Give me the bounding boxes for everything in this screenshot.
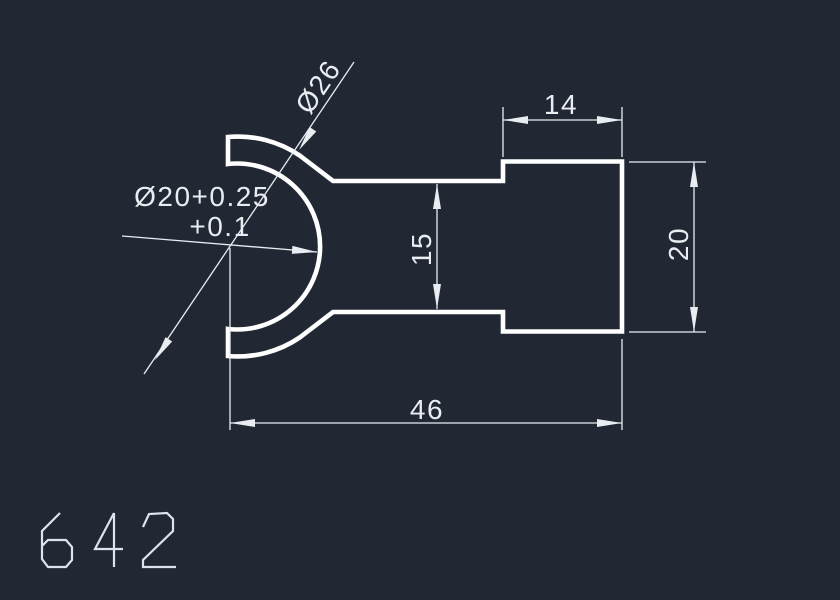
dim-head-height-label: 20 xyxy=(663,227,694,261)
technical-drawing: 14 20 15 46 xyxy=(0,0,840,600)
dim-head-width-label: 14 xyxy=(544,89,578,120)
dim-neck-height-label: 15 xyxy=(406,232,437,266)
dim-inner-diameter: Ø20+0.25 +0.1 xyxy=(122,181,317,254)
arrow-down-left-icon xyxy=(155,337,172,360)
dim-head-width: 14 xyxy=(503,89,622,157)
arrow-right-icon xyxy=(597,419,622,427)
arrow-down-icon xyxy=(690,307,698,332)
arrow-up-icon xyxy=(690,162,698,187)
dim-inner-diameter-label: Ø20+0.25 xyxy=(134,181,270,212)
arrow-right-icon xyxy=(292,246,317,254)
arrow-down-icon xyxy=(433,284,441,309)
dim-inner-diameter-tolerance-label: +0.1 xyxy=(189,211,250,242)
dim-total-length-label: 46 xyxy=(410,394,444,425)
dim-neck-height: 15 xyxy=(406,184,441,309)
arrow-left-icon xyxy=(230,419,255,427)
arrow-up-icon xyxy=(433,184,441,209)
arrow-right-icon xyxy=(597,116,622,124)
cad-canvas: 14 20 15 46 xyxy=(0,0,840,600)
dim-total-length: 46 xyxy=(230,248,622,430)
part-number-label: 642 xyxy=(36,503,177,586)
dim-head-height: 20 xyxy=(629,162,706,332)
dim-outer-diameter-label: Ø26 xyxy=(289,54,347,119)
part-number: 642 xyxy=(36,503,177,586)
arrow-left-icon xyxy=(503,116,528,124)
